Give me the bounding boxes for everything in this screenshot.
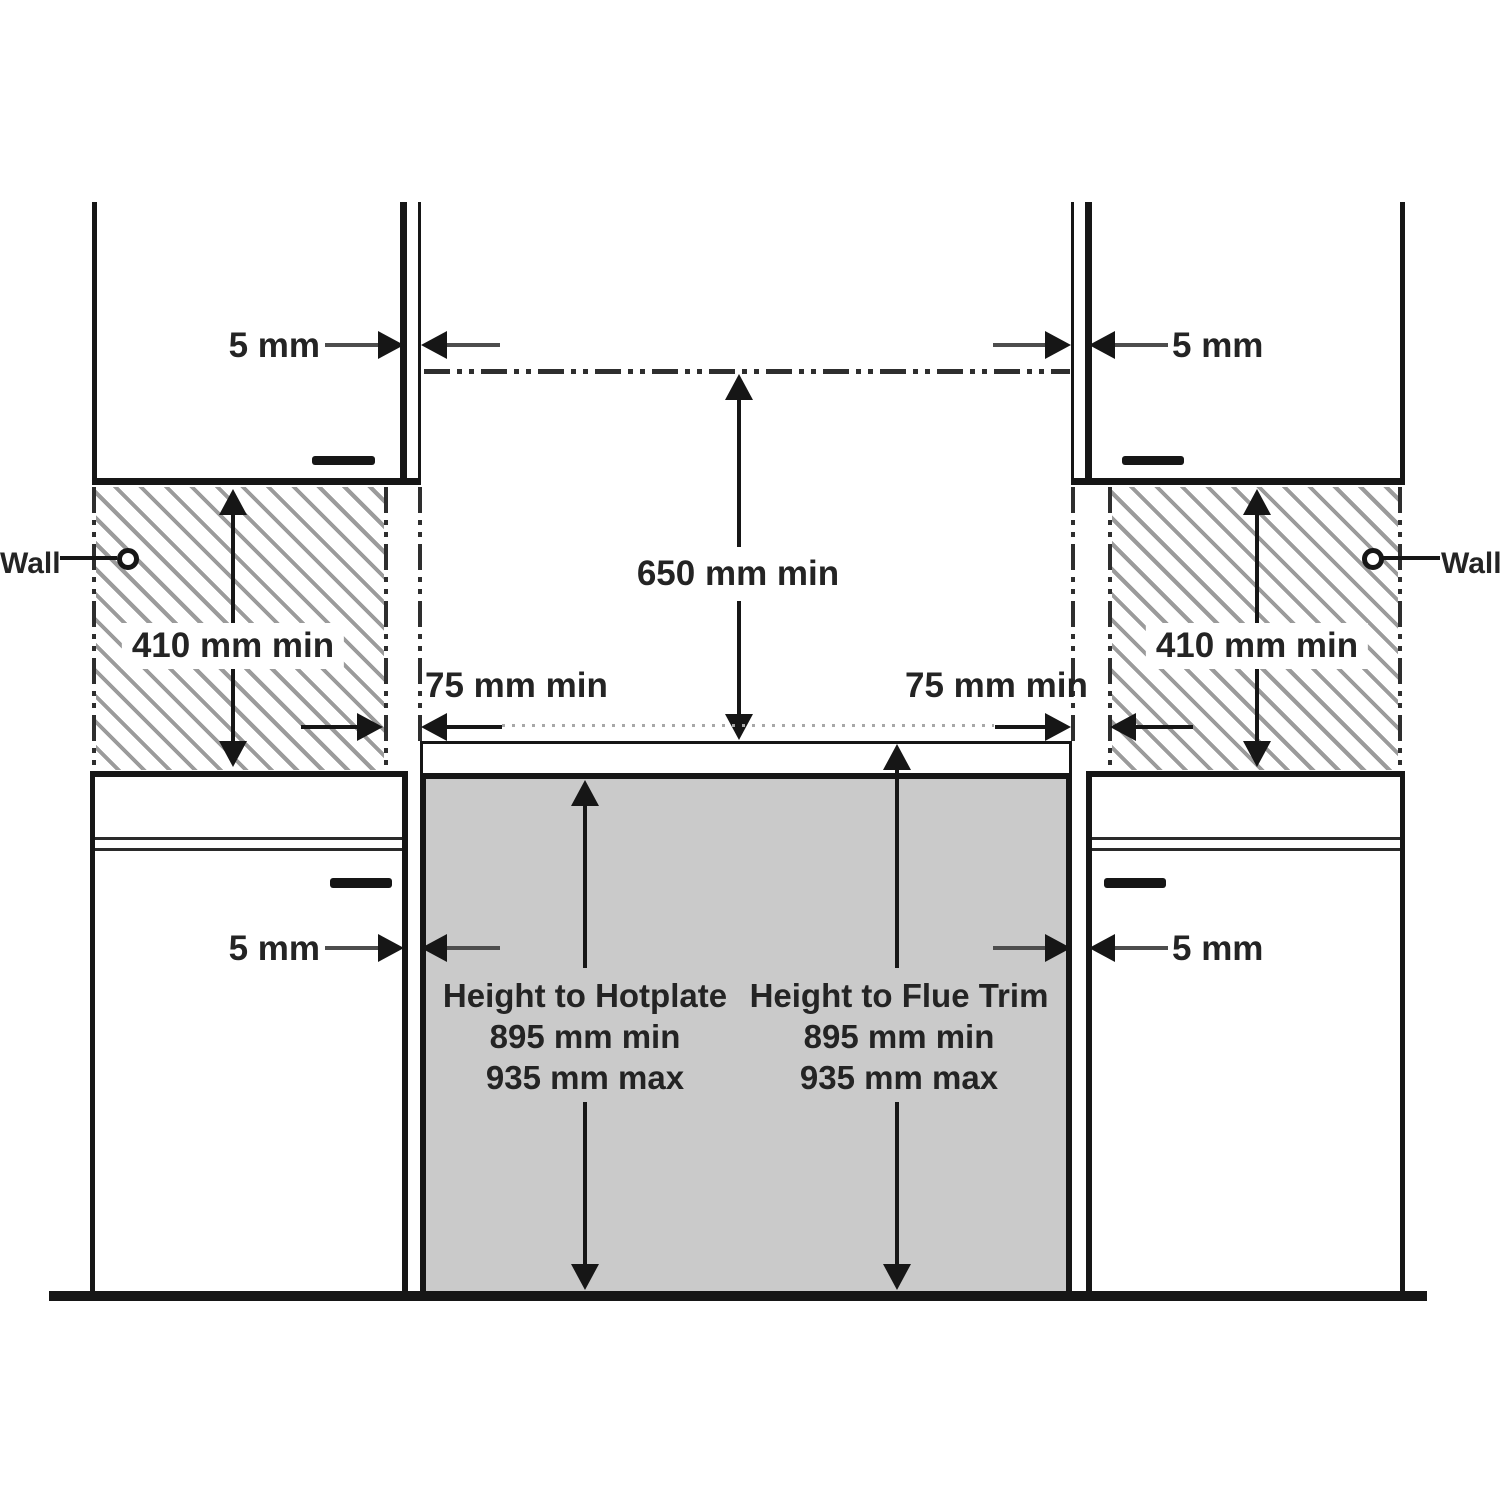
cooker-side-plane-left xyxy=(418,487,422,741)
gap-lower-left-shaft xyxy=(325,946,378,950)
hood-side-line-right xyxy=(1071,202,1074,478)
installation-clearance-diagram: Wall Wall 410 mm min 410 mm min 650 mm m… xyxy=(0,0,1500,1500)
gap-lower-left-label: 5 mm xyxy=(140,931,320,967)
dim-75-outer-left-shaft xyxy=(301,725,357,729)
dim-410-right-label: 410 mm min xyxy=(1146,623,1368,669)
benchtop-line xyxy=(95,848,402,851)
dim-75-inner-left-shaft xyxy=(447,725,502,729)
gap-upper-left-shaft xyxy=(325,343,378,347)
arrowhead-left-icon xyxy=(421,934,447,962)
arrowhead-left-icon xyxy=(1089,331,1115,359)
height-to-hotplate-title: Height to Hotplate xyxy=(443,975,727,1016)
gap-upper-left-inner-shaft xyxy=(447,343,500,347)
dim-650-shaft-upper xyxy=(737,398,741,547)
gap-upper-right-shaft xyxy=(1115,343,1168,347)
gap-lower-right-label: 5 mm xyxy=(1172,931,1263,967)
dim-650-shaft-lower xyxy=(737,601,741,717)
arrowhead-up-icon xyxy=(725,374,753,400)
arrowhead-right-icon xyxy=(357,713,383,741)
gap-lower-right-inner-shaft xyxy=(993,946,1045,950)
dim-hotplate-shaft-upper xyxy=(583,804,587,968)
cabinet-handle xyxy=(1104,878,1166,888)
arrowhead-down-icon xyxy=(883,1264,911,1290)
gap-upper-right-label: 5 mm xyxy=(1172,328,1263,364)
wall-label-left: Wall xyxy=(0,546,58,582)
wall-zone-left-boundary-inner xyxy=(384,487,388,770)
height-to-flue-trim-label: Height to Flue Trim 895 mm min 935 mm ma… xyxy=(750,975,1049,1098)
wall-leader-right xyxy=(1383,556,1440,560)
arrowhead-right-icon xyxy=(1045,331,1071,359)
benchtop-line xyxy=(1092,848,1400,851)
arrowhead-down-icon xyxy=(219,741,247,767)
wall-zone-right-boundary-outer xyxy=(1398,487,1402,770)
arrowhead-down-icon xyxy=(1243,741,1271,767)
arrowhead-up-icon xyxy=(883,744,911,770)
arrowhead-right-icon xyxy=(378,934,404,962)
wall-label-right: Wall xyxy=(1441,546,1500,582)
arrowhead-up-icon xyxy=(571,780,599,806)
height-to-hotplate-min: 895 mm min xyxy=(443,1016,727,1057)
gap-lower-left-inner-shaft xyxy=(447,946,500,950)
wall-zone-left-boundary-outer xyxy=(92,487,96,770)
arrowhead-left-icon xyxy=(421,713,447,741)
dim-410-left-label: 410 mm min xyxy=(122,623,344,669)
dim-650-label: 650 mm min xyxy=(637,556,839,592)
arrowhead-down-icon xyxy=(571,1264,599,1290)
lower-cabinet-left xyxy=(90,771,408,1296)
dim-75-left-label: 75 mm min xyxy=(425,668,608,704)
arrowhead-right-icon xyxy=(1045,713,1071,741)
dim-flue-shaft-lower xyxy=(895,1102,899,1264)
cabinet-handle xyxy=(330,878,392,888)
arrowhead-left-icon xyxy=(1089,934,1115,962)
lower-cabinet-right xyxy=(1086,771,1405,1296)
benchtop-line xyxy=(95,837,402,840)
floor-line xyxy=(49,1291,1427,1301)
arrowhead-left-icon xyxy=(1110,713,1136,741)
dim-flue-shaft-upper xyxy=(895,768,899,968)
dim-75-outer-right-shaft xyxy=(1136,725,1193,729)
wall-marker-right xyxy=(1362,548,1384,570)
dim-75-inner-right-shaft xyxy=(995,725,1045,729)
dim-75-connector-line xyxy=(502,724,994,727)
height-to-flue-trim-min: 895 mm min xyxy=(750,1016,1049,1057)
dim-hotplate-shaft-lower xyxy=(583,1102,587,1264)
gap-lower-right-shaft xyxy=(1115,946,1168,950)
height-to-hotplate-max: 935 mm max xyxy=(443,1057,727,1098)
height-to-hotplate-label: Height to Hotplate 895 mm min 935 mm max xyxy=(443,975,727,1098)
upper-cabinet-left-bottom-line xyxy=(92,478,421,485)
wall-leader-left xyxy=(60,556,117,560)
height-to-flue-trim-max: 935 mm max xyxy=(750,1057,1049,1098)
arrowhead-left-icon xyxy=(421,331,447,359)
flue-trim-strip xyxy=(420,741,1072,773)
gap-upper-left-label: 5 mm xyxy=(140,328,320,364)
upper-cabinet-right-bottom-line xyxy=(1071,478,1405,485)
wall-marker-left xyxy=(117,548,139,570)
gap-upper-right-inner-shaft xyxy=(993,343,1045,347)
dim-75-right-label: 75 mm min xyxy=(905,668,1068,704)
arrowhead-right-icon xyxy=(1045,934,1071,962)
benchtop-line xyxy=(1092,837,1400,840)
arrowhead-right-icon xyxy=(378,331,404,359)
cabinet-handle xyxy=(1122,456,1184,465)
cabinet-handle xyxy=(312,456,375,465)
arrowhead-down-icon xyxy=(725,714,753,740)
height-to-flue-trim-title: Height to Flue Trim xyxy=(750,975,1049,1016)
